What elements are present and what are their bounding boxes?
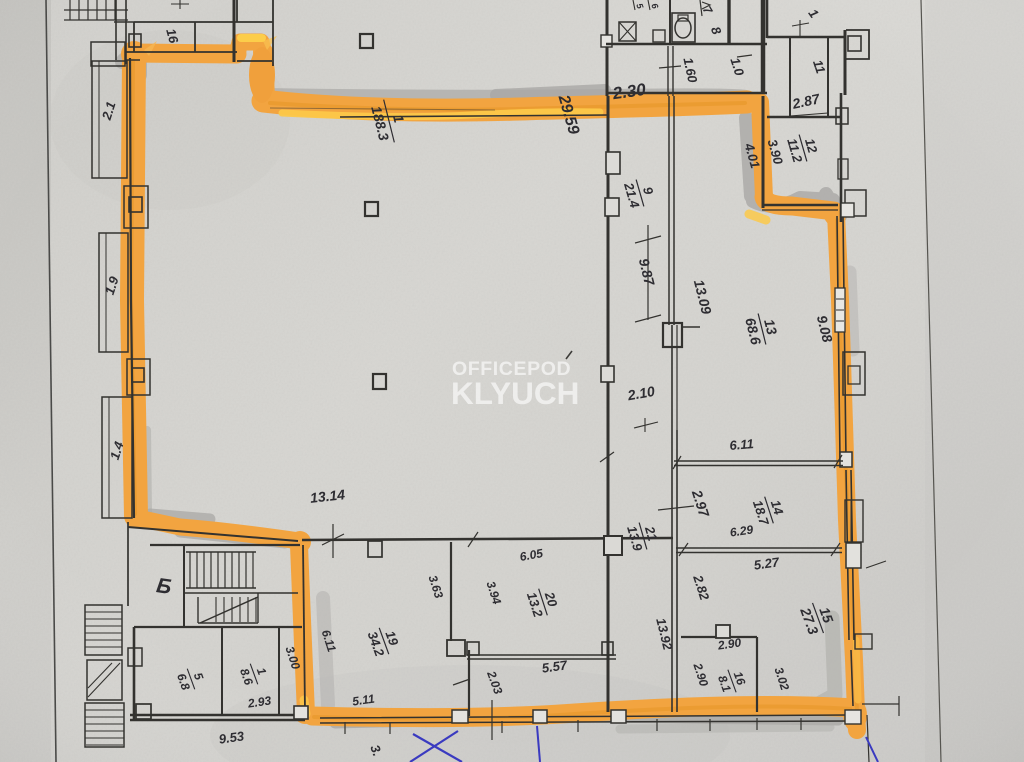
svg-text:6.11: 6.11 xyxy=(729,436,755,453)
svg-text:KLYUCH: KLYUCH xyxy=(451,375,579,411)
